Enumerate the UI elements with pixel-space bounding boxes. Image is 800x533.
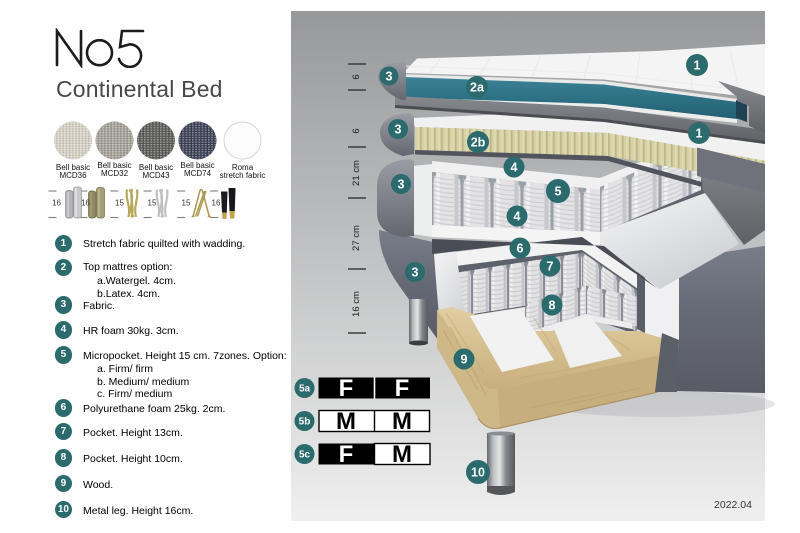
svg-text:1: 1	[696, 127, 703, 141]
svg-text:F: F	[395, 375, 410, 402]
svg-text:16 cm: 16 cm	[351, 291, 362, 317]
svg-text:F: F	[339, 375, 354, 402]
svg-text:M: M	[392, 408, 412, 435]
svg-text:2a: 2a	[470, 81, 485, 95]
svg-text:M: M	[336, 408, 356, 435]
svg-text:5: 5	[555, 185, 562, 199]
svg-text:8: 8	[549, 299, 556, 313]
svg-text:5b: 5b	[299, 417, 311, 428]
svg-text:F: F	[339, 441, 354, 468]
svg-text:9: 9	[461, 353, 468, 367]
svg-text:10: 10	[471, 466, 485, 480]
svg-text:27 cm: 27 cm	[351, 225, 362, 251]
svg-text:1: 1	[694, 59, 701, 73]
svg-text:2022.04: 2022.04	[714, 499, 752, 511]
svg-text:4: 4	[514, 210, 521, 224]
svg-text:21 cm: 21 cm	[351, 160, 362, 186]
svg-text:3: 3	[398, 178, 405, 192]
svg-text:2b: 2b	[471, 136, 486, 150]
svg-text:3: 3	[395, 123, 402, 137]
svg-text:3: 3	[412, 266, 419, 280]
svg-text:5c: 5c	[299, 450, 311, 461]
svg-text:5a: 5a	[299, 384, 311, 395]
svg-text:6: 6	[351, 74, 362, 79]
svg-text:6: 6	[517, 242, 524, 256]
svg-text:7: 7	[547, 260, 554, 274]
svg-text:3: 3	[386, 70, 393, 84]
svg-text:M: M	[392, 441, 412, 468]
svg-text:4: 4	[511, 161, 518, 175]
svg-text:6: 6	[351, 128, 362, 133]
